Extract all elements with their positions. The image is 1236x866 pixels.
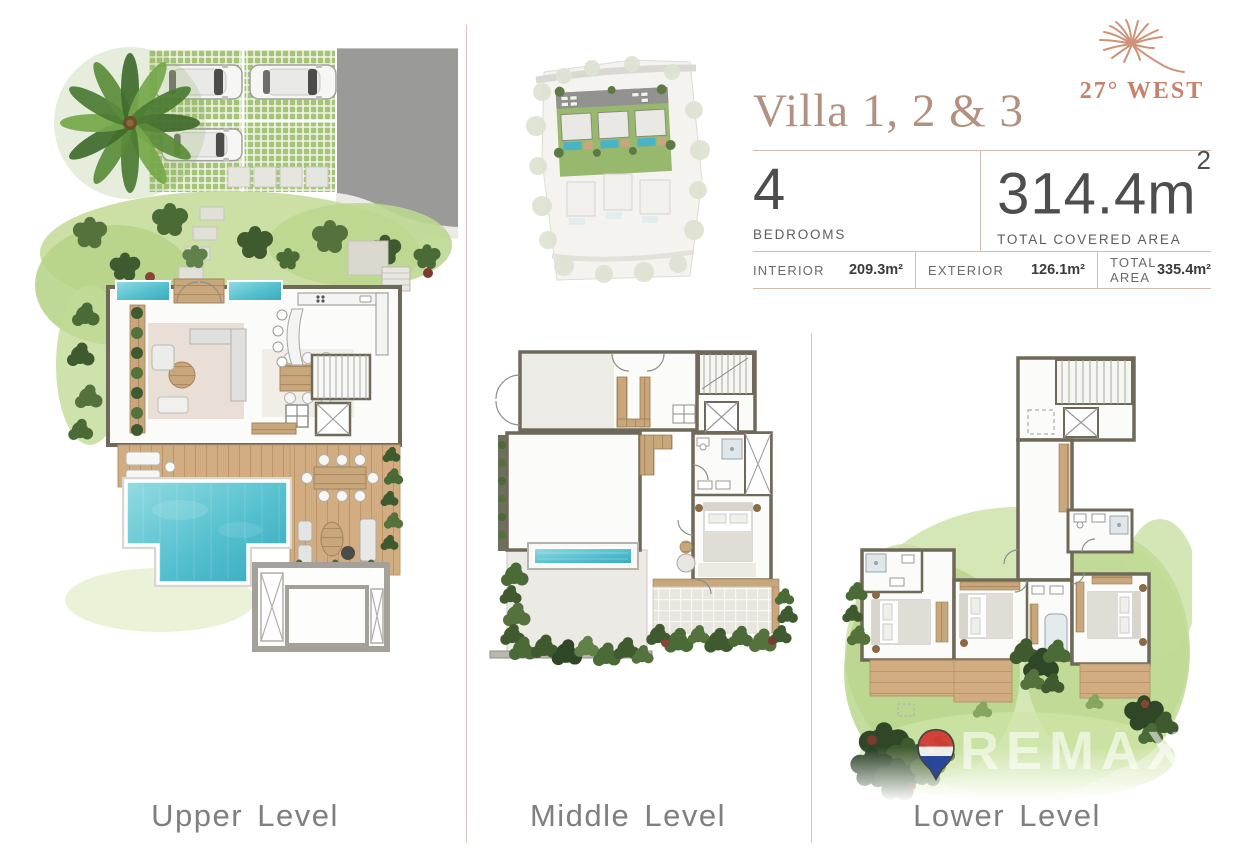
outdoor-dining-table [314,467,366,489]
exterior-label: EXTERIOR [928,263,1004,278]
spec-row: 4 BEDROOMS 314.4m2 TOTAL COVERED AREA [753,151,1211,251]
sideboard [252,423,296,434]
brand-logo-block: 27° WEST [1071,18,1213,105]
villa-unit [598,111,630,149]
floorplan-brochure-page: Villa 1, 2 & 3 27° WEST 4 BEDROOMS [0,0,1236,866]
total-area-stat: TOTAL AREA 335.4m² [1098,252,1211,288]
elevator-shaft [316,403,350,435]
wood-decks [870,660,1150,702]
remax-watermark: REMAX 24 [916,718,1229,784]
house-living-level [108,279,400,445]
lower-level-label: Lower Level [842,798,1172,842]
stairs [699,354,753,394]
info-panel: Villa 1, 2 & 3 27° WEST 4 BEDROOMS [753,18,1211,290]
interior-value: 209.3m² [849,262,903,278]
villa-unit [635,109,667,147]
page-title: Villa 1, 2 & 3 [753,84,1024,138]
planter-pool [228,281,282,301]
upper-level-floorplan [30,15,460,665]
remax-balloon-icon [916,728,956,782]
exterior-stat: EXTERIOR 126.1m² [915,252,1098,288]
wood-closet [640,435,672,475]
total-area-label: TOTAL AREA [1110,255,1157,285]
lower-court [255,565,387,649]
bedroom [677,503,761,577]
upper-level-label: Upper Level [30,798,460,842]
patio [653,579,779,633]
interior-stat: INTERIOR 209.3m² [753,252,915,288]
elevator-shaft [705,402,738,432]
planter-pool [116,281,170,301]
middle-level-floorplan [482,335,802,715]
villa-unit [561,113,593,151]
highlighted-villas [550,81,677,177]
closet [745,433,771,495]
watermark-suffix: 24 [1190,746,1229,780]
brand-name: 27° WEST [1071,78,1213,105]
area-stats-row: INTERIOR 209.3m² EXTERIOR 126.1m² TOTAL … [753,252,1211,288]
bedrooms-value: 4 [753,161,980,219]
divider-line [753,288,1211,289]
palm-tree [54,47,206,199]
chaise [158,397,188,413]
column-divider [466,25,467,843]
palm-frond-icon [1086,18,1198,76]
bedrooms-cell: 4 BEDROOMS [753,151,980,251]
garage-floor [522,354,614,428]
lap-pool [528,543,638,569]
covered-area-cell: 314.4m2 TOTAL COVERED AREA [981,151,1211,251]
total-area-value: 335.4m² [1157,262,1211,278]
car [250,64,336,100]
upper-bathroom [1068,510,1132,552]
watermark-text: REMAX [960,718,1190,784]
middle-level-label: Middle Level [470,798,786,842]
stairs [312,355,370,399]
covered-area-value: 314.4m2 [997,155,1211,223]
sun-lounger [126,452,160,465]
interior-label: INTERIOR [753,263,825,278]
site-masterplan [512,30,712,285]
entry-deck [174,279,224,303]
armchair [152,345,174,370]
covered-area-label: TOTAL COVERED AREA [997,232,1211,247]
column-divider [811,333,812,843]
bedrooms-label: BEDROOMS [753,227,980,242]
exterior-value: 126.1m² [1031,262,1085,278]
